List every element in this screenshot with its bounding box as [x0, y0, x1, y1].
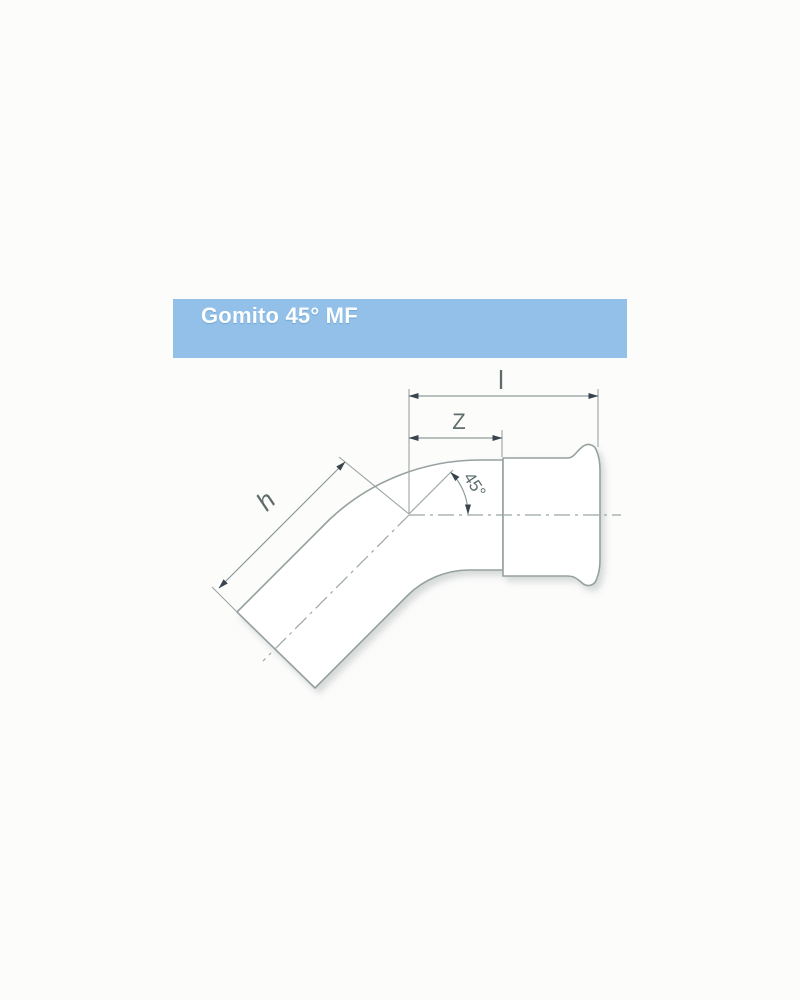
- dim-label-h: h: [250, 485, 281, 516]
- technical-drawing-canvas: l Z h 45°: [0, 0, 800, 1000]
- dim-label-l: l: [498, 365, 504, 395]
- elbow-fitting-drawing: [237, 445, 600, 688]
- extension-line-h-bottom: [212, 587, 238, 613]
- dim-label-z: Z: [452, 409, 465, 434]
- pipe-elbow-outline: [237, 460, 503, 688]
- catalog-page: Gomito 45° MF l: [0, 0, 800, 1000]
